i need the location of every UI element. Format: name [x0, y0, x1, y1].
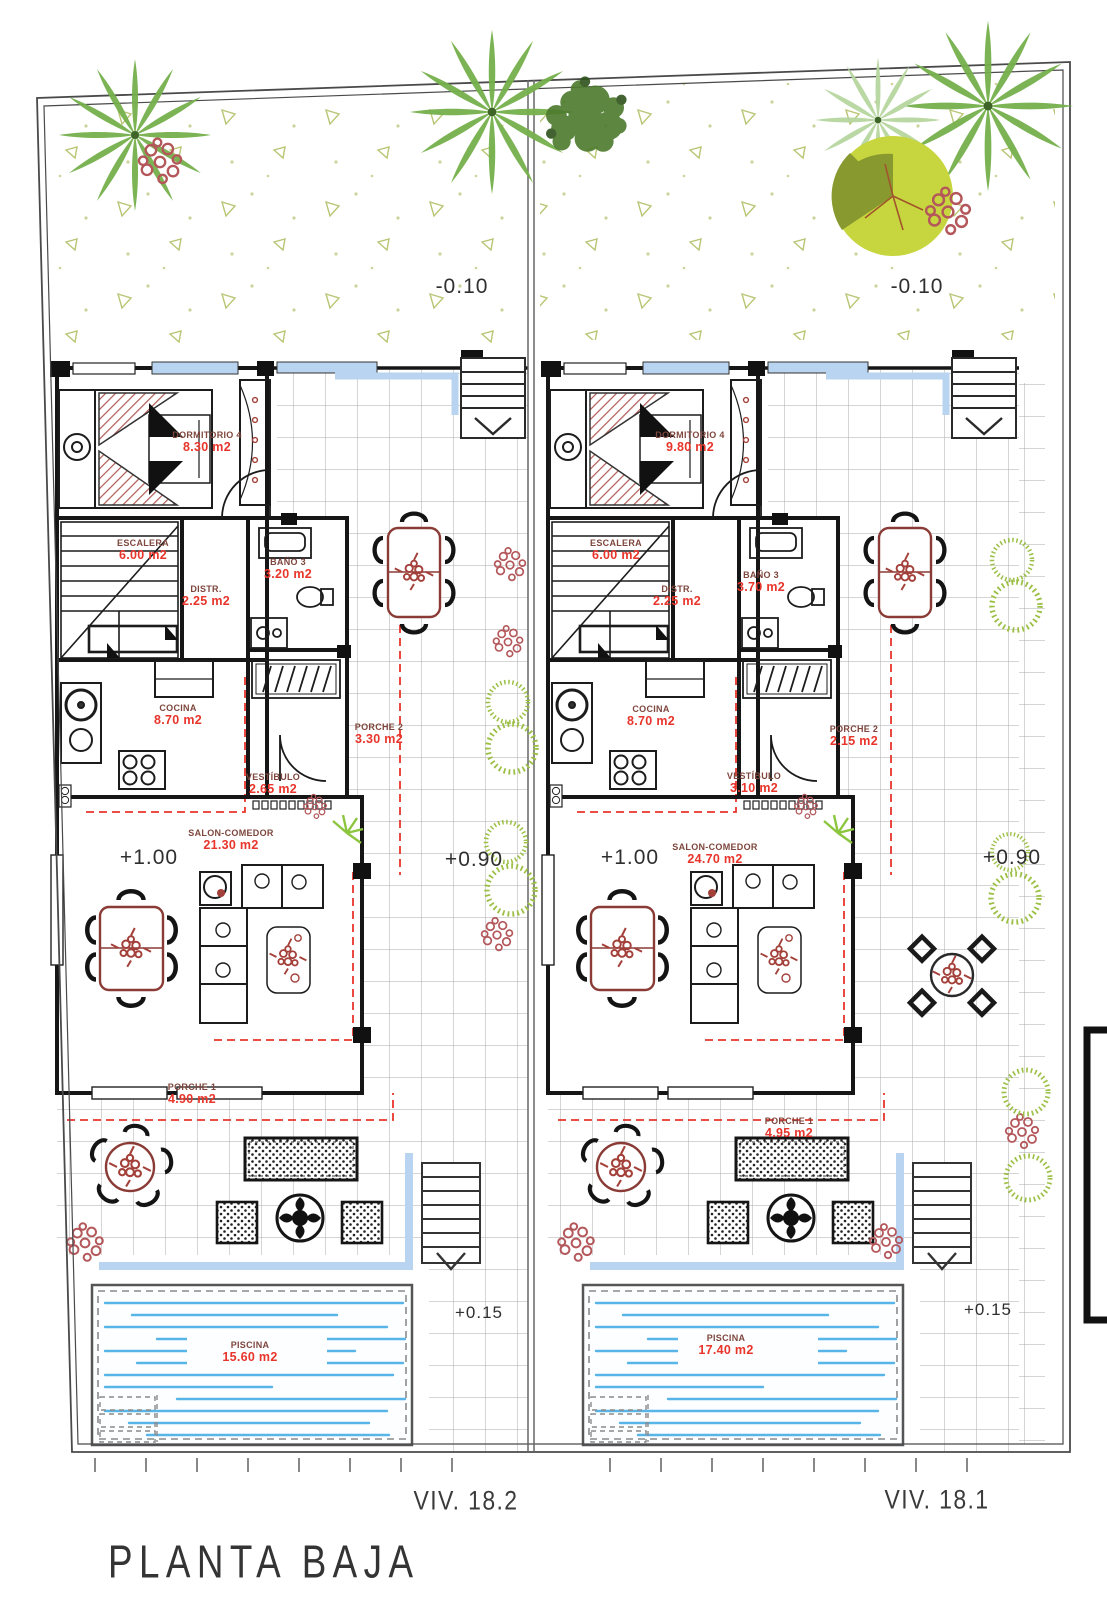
- room-area: 2.65 m2: [246, 782, 300, 796]
- level-label-terrace-u181: +0.90: [983, 846, 1041, 870]
- level-label-salon-u181: +1.00: [601, 846, 659, 870]
- room-label-porche1-u182: PORCHE 1 4.90 m2: [168, 1082, 216, 1107]
- room-label-bano3-u182: BAÑO 3 3.20 m2: [264, 557, 312, 582]
- room-label-escalera-u181: ESCALERA 6.00 m2: [590, 538, 642, 563]
- room-area: 8.70 m2: [154, 713, 202, 727]
- level-label-garden-u182: -0.10: [436, 275, 489, 299]
- room-name: PISCINA: [222, 1340, 277, 1350]
- room-name: VESTÍBULO: [246, 772, 300, 782]
- unit-drawing-viv-18-1: [541, 350, 1019, 1452]
- room-area: 3.20 m2: [264, 567, 312, 581]
- level-label-garden-u181: -0.10: [891, 275, 944, 299]
- room-name: VESTÍBULO: [727, 771, 781, 781]
- room-name: BAÑO 3: [737, 570, 785, 580]
- plan-drawing: [0, 0, 1107, 1600]
- room-name: PORCHE 1: [168, 1082, 216, 1092]
- room-area: 4.95 m2: [765, 1126, 813, 1140]
- room-area: 6.00 m2: [117, 548, 169, 562]
- room-label-porche2-u181: PORCHE 2 2.15 m2: [830, 724, 878, 749]
- room-area: 2.25 m2: [653, 594, 701, 608]
- room-label-salon-u182: SALON-COMEDOR 21.30 m2: [188, 828, 273, 853]
- unit-name-viv-18-2: VIV. 18.2: [414, 1486, 519, 1517]
- room-area: 6.00 m2: [590, 548, 642, 562]
- neighbour-structure: [1087, 1030, 1107, 1320]
- room-name: ESCALERA: [590, 538, 642, 548]
- unit-name-viv-18-1: VIV. 18.1: [885, 1485, 990, 1516]
- room-label-porche1-u181: PORCHE 1 4.95 m2: [765, 1116, 813, 1141]
- room-name: DORMITORIO 4: [172, 430, 241, 440]
- level-label-pooldeck-u181: +0.15: [964, 1300, 1012, 1320]
- room-name: PISCINA: [698, 1333, 753, 1343]
- room-label-distr-u181: DISTR. 2.25 m2: [653, 584, 701, 609]
- room-name: DORMITORIO 4: [655, 430, 724, 440]
- room-label-piscina-u181: PISCINA 17.40 m2: [698, 1333, 753, 1358]
- room-name: PORCHE 2: [355, 722, 403, 732]
- room-area: 17.40 m2: [698, 1343, 753, 1357]
- room-area: 2.15 m2: [830, 734, 878, 748]
- floor-plan: DORMITORIO 4 8.30 m2 ESCALERA 6.00 m2 DI…: [0, 0, 1107, 1600]
- room-label-cocina-u181: COCINA 8.70 m2: [627, 704, 675, 729]
- unit-drawing-viv-18-2: [50, 350, 528, 1452]
- room-name: ESCALERA: [117, 538, 169, 548]
- room-name: SALON-COMEDOR: [188, 828, 273, 838]
- room-area: 8.30 m2: [172, 440, 241, 454]
- room-name: PORCHE 2: [830, 724, 878, 734]
- room-name: COCINA: [154, 703, 202, 713]
- room-name: DISTR.: [182, 584, 230, 594]
- level-label-salon-u182: +1.00: [120, 846, 178, 870]
- room-name: COCINA: [627, 704, 675, 714]
- level-label-pooldeck-u182: +0.15: [455, 1303, 503, 1323]
- room-label-vestibulo-u181: VESTÍBULO 3.10 m2: [727, 771, 781, 796]
- room-area: 21.30 m2: [188, 838, 273, 852]
- room-area: 9.80 m2: [655, 440, 724, 454]
- room-area: 15.60 m2: [222, 1350, 277, 1364]
- room-label-dormitorio4-u181: DORMITORIO 4 9.80 m2: [655, 430, 724, 455]
- room-label-distr-u182: DISTR. 2.25 m2: [182, 584, 230, 609]
- room-label-piscina-u182: PISCINA 15.60 m2: [222, 1340, 277, 1365]
- room-label-porche2-u182: PORCHE 2 3.30 m2: [355, 722, 403, 747]
- room-label-dormitorio4-u182: DORMITORIO 4 8.30 m2: [172, 430, 241, 455]
- room-name: SALON-COMEDOR: [672, 842, 757, 852]
- room-area: 8.70 m2: [627, 714, 675, 728]
- room-area: 2.25 m2: [182, 594, 230, 608]
- page-title: PLANTA BAJA: [108, 1537, 420, 1589]
- level-label-terrace-u182: +0.90: [445, 848, 503, 872]
- room-area: 3.70 m2: [737, 580, 785, 594]
- dimension-ticks: [95, 1458, 967, 1472]
- room-name: BAÑO 3: [264, 557, 312, 567]
- room-label-escalera-u182: ESCALERA 6.00 m2: [117, 538, 169, 563]
- room-area: 3.30 m2: [355, 732, 403, 746]
- party-wall-divider: [528, 80, 534, 1452]
- room-label-vestibulo-u182: VESTÍBULO 2.65 m2: [246, 772, 300, 797]
- room-area: 24.70 m2: [672, 852, 757, 866]
- room-area: 3.10 m2: [727, 781, 781, 795]
- room-label-salon-u181: SALON-COMEDOR 24.70 m2: [672, 842, 757, 867]
- room-area: 4.90 m2: [168, 1092, 216, 1106]
- room-name: PORCHE 1: [765, 1116, 813, 1126]
- room-label-bano3-u181: BAÑO 3 3.70 m2: [737, 570, 785, 595]
- room-label-cocina-u182: COCINA 8.70 m2: [154, 703, 202, 728]
- room-name: DISTR.: [653, 584, 701, 594]
